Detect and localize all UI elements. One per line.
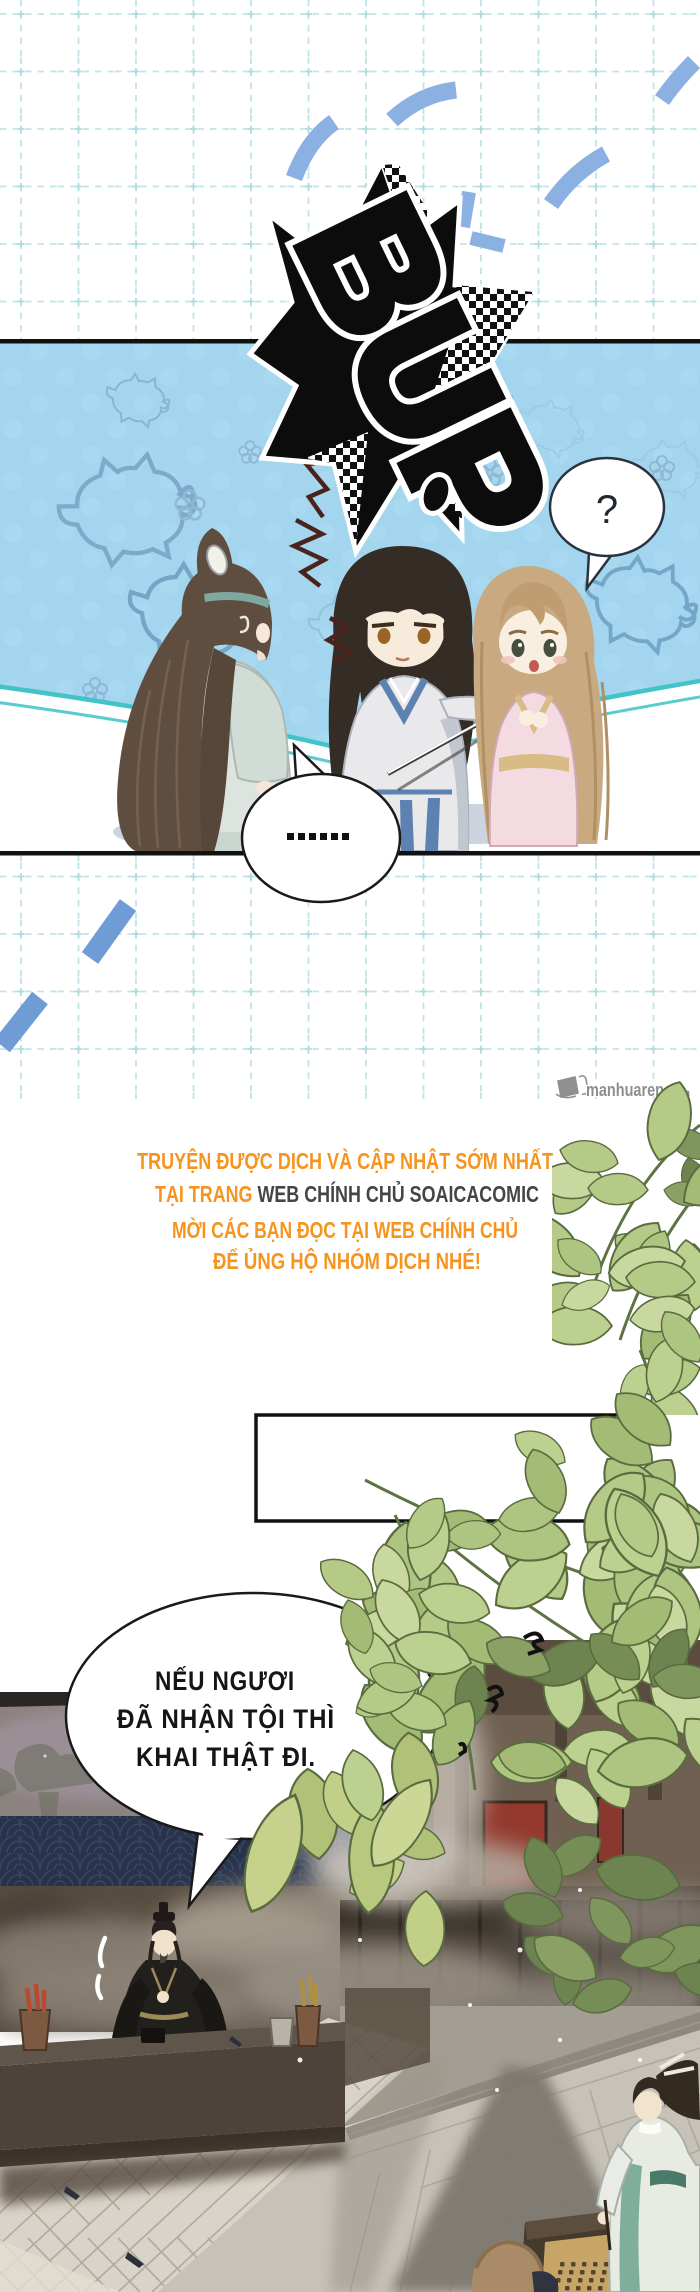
- svg-text:NẾU NGƯƠI: NẾU NGƯƠI: [155, 1665, 295, 1696]
- svg-text:manhuaren: manhuaren: [586, 1080, 664, 1100]
- svg-text:TRUYỆN ĐƯỢC DỊCH VÀ CẬP NHẬT S: TRUYỆN ĐƯỢC DỊCH VÀ CẬP NHẬT SỚM NHẤT: [137, 1147, 553, 1174]
- svg-text:?: ?: [596, 488, 618, 532]
- svg-text:ĐỂ ỦNG HỘ NHÓM DỊCH NHÉ!: ĐỂ ỦNG HỘ NHÓM DỊCH NHÉ!: [213, 1246, 481, 1274]
- svg-text:KHAI THẬT ĐI.: KHAI THẬT ĐI.: [136, 1741, 316, 1772]
- svg-text:MỜI CÁC BẠN ĐỌC TẠI WEB CHÍNH: MỜI CÁC BẠN ĐỌC TẠI WEB CHÍNH CHỦ: [172, 1215, 518, 1243]
- svg-text:TẠI TRANG WEB CHÍNH CHỦ SOAICA: TẠI TRANG WEB CHÍNH CHỦ SOAICACOMIC: [155, 1179, 539, 1207]
- svg-text:ĐÃ NHẬN TỘI THÌ: ĐÃ NHẬN TỘI THÌ: [117, 1703, 335, 1734]
